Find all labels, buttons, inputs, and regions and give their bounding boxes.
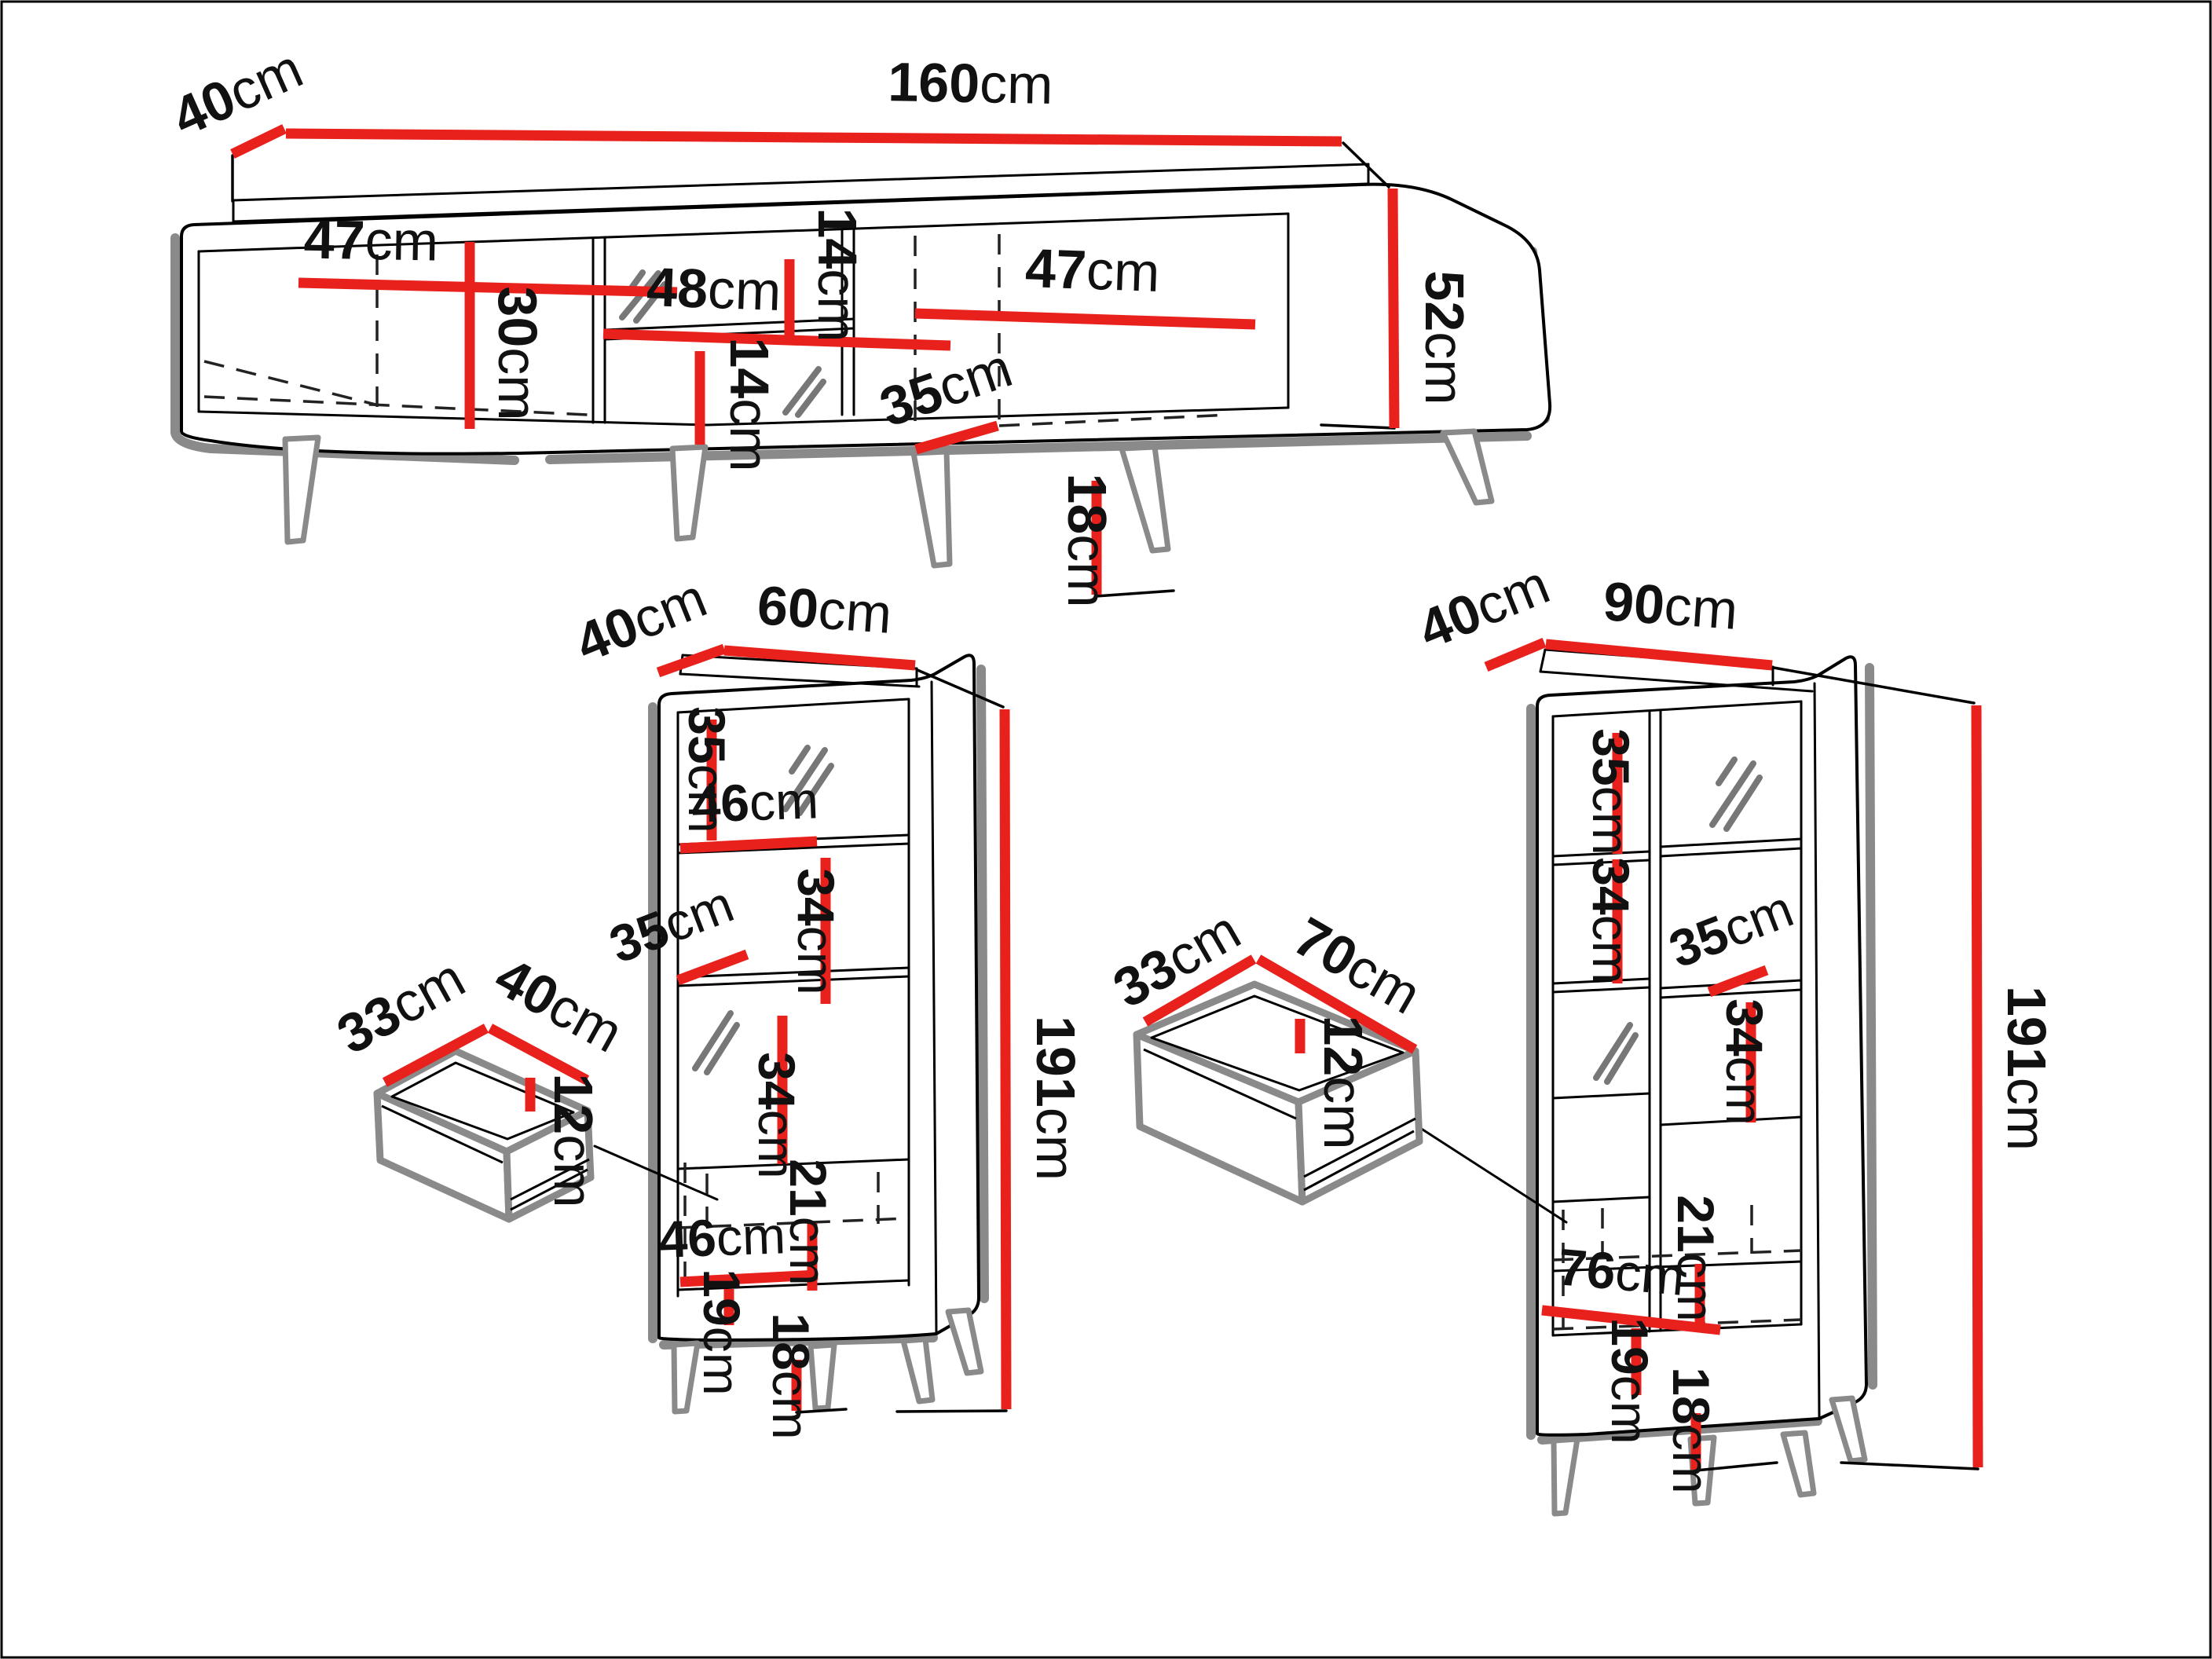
tv-stand-niche-top-height-label: 14cm bbox=[807, 207, 868, 342]
wide-cabinet-width-label: 90cm bbox=[1602, 570, 1740, 641]
wide-cabinet-leg-height-label: 18cm bbox=[1662, 1367, 1720, 1493]
tall-cabinet-shelf-width-label: 46cm bbox=[690, 771, 819, 833]
tv-stand-width-label: 160cm bbox=[888, 51, 1053, 115]
tall-cabinet-drawer-section-label: 21cm bbox=[779, 1159, 837, 1285]
tall-cabinet-bottom-door-width-label: 46cm bbox=[657, 1206, 786, 1269]
wide-cabinet-door-section-label: 34cm bbox=[1716, 998, 1774, 1125]
furniture-dimension-diagram: 40cm 160cm 52cm 47cm 30cm 48cm 14cm 14cm… bbox=[0, 0, 2212, 1659]
small-drawer-height-label: 12cm bbox=[543, 1073, 604, 1207]
tv-stand-niche-bottom-height-label: 14cm bbox=[719, 337, 780, 471]
wide-cabinet-second-section-label: 34cm bbox=[1582, 857, 1640, 983]
tall-cabinet-leg-height-label: 18cm bbox=[762, 1313, 820, 1439]
wide-cabinet-total-height-line bbox=[1976, 705, 1978, 1467]
tall-cabinet-total-height-line bbox=[1005, 709, 1006, 1409]
wide-cabinet-top-section-label: 35cm bbox=[1582, 728, 1640, 855]
tall-cabinet-total-height-label: 191cm bbox=[1025, 1016, 1086, 1181]
large-drawer-height-label: 12cm bbox=[1313, 1015, 1374, 1149]
tv-stand-left-door-height-label: 30cm bbox=[487, 286, 548, 420]
tv-stand-body-height-line bbox=[1393, 189, 1394, 428]
tv-stand-leg-height-label: 18cm bbox=[1057, 473, 1118, 607]
tv-stand-right-door-width-label: 47cm bbox=[1024, 237, 1161, 303]
wide-cabinet-bottom-section-label: 19cm bbox=[1601, 1317, 1659, 1444]
tall-cabinet-shelf-width-line bbox=[680, 841, 817, 848]
tv-stand-niche-width-label: 48cm bbox=[646, 256, 782, 322]
tall-cabinet-bottom-section-label: 19cm bbox=[693, 1269, 751, 1395]
tall-cabinet-second-section-label: 34cm bbox=[787, 868, 845, 994]
wide-cabinet-total-height-label: 191cm bbox=[1996, 986, 2057, 1151]
tall-cabinet-width-label: 60cm bbox=[756, 574, 894, 645]
wide-cabinet-bottom-door-width-label: 76cm bbox=[1555, 1237, 1686, 1306]
tv-stand-body-height-label: 52cm bbox=[1414, 270, 1475, 405]
tv-stand-left-door-width-label: 47cm bbox=[303, 209, 439, 273]
